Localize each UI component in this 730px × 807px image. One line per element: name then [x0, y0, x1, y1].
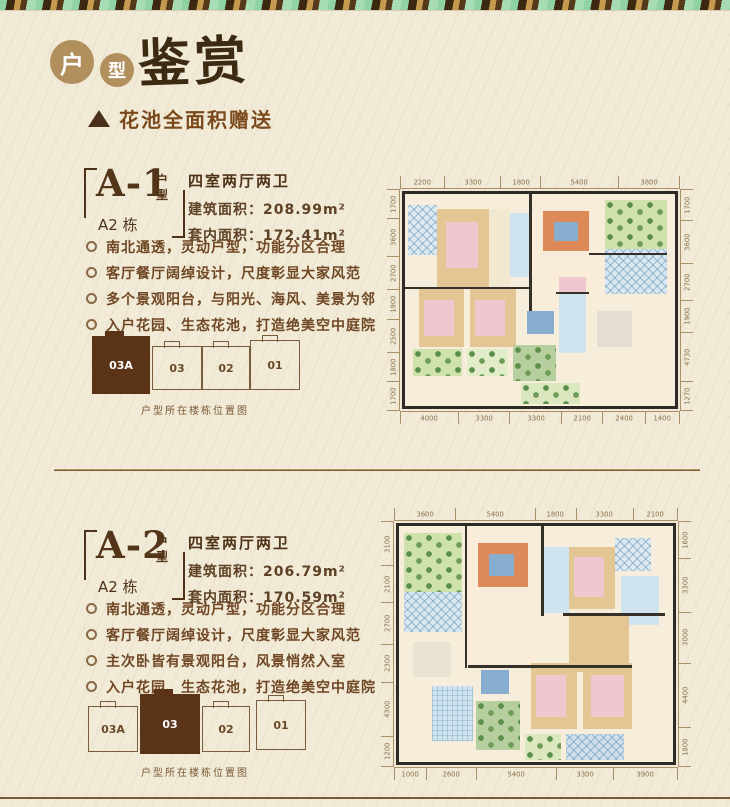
dimension-label: 3600	[683, 233, 691, 250]
dimension-label: 1700	[389, 387, 397, 404]
floorplan-room	[475, 300, 505, 336]
feature-bullet-row: 入户花园、生态花池，打造绝美空中庭院	[86, 316, 376, 333]
unit-code-header: A-2 户型 A2 栋	[84, 530, 188, 600]
dimension-segment: 2700	[681, 263, 693, 300]
dimension-label: 1900	[683, 308, 691, 325]
unit-code-header: A-1 户型 A2 栋	[84, 168, 188, 238]
dimension-label: 5400	[508, 770, 525, 778]
floorplan-room	[405, 287, 529, 289]
floorplan-room	[566, 734, 624, 760]
building-unit-03A: 03A	[88, 706, 138, 752]
dimension-label: 2300	[383, 655, 391, 672]
dimension-label: 2700	[389, 264, 397, 281]
floorplan-dims-left: 1700360027001900250018001700	[382, 189, 400, 411]
dimension-label: 1800	[547, 510, 564, 518]
floorplan-dims-bottom: 10002600540033003900	[394, 767, 678, 782]
building-unit-01: 01	[256, 700, 306, 750]
dimension-segment: 5400	[455, 508, 535, 520]
dimension-label: 1800	[681, 738, 689, 755]
floorplan-room	[481, 670, 508, 694]
floorplan-room	[541, 526, 544, 616]
page-title-calligraphy: 鉴赏	[137, 18, 252, 97]
dimension-label: 1800	[389, 358, 397, 375]
bracket-right-icon	[172, 190, 185, 238]
bullet-ring-icon	[86, 293, 97, 304]
floorplan-room	[413, 349, 462, 377]
floorplan-room	[527, 311, 554, 334]
dimension-segment: 3300	[444, 176, 500, 188]
dimension-segment: 1900	[387, 289, 399, 319]
dimension-segment: 3300	[556, 768, 613, 780]
dimension-label: 3300	[527, 414, 544, 422]
dimension-segment: 3000	[679, 612, 691, 663]
floorplan-room	[489, 209, 511, 287]
dimension-segment: 3600	[387, 218, 399, 256]
feature-bullet-row: 南北通透，灵动户型，功能分区合理	[86, 600, 376, 617]
feature-bullets: 南北通透，灵动户型，功能分区合理客厅餐厅阔绰设计，尺度彰显大家风范主次卧皆有景观…	[86, 600, 376, 704]
feature-bullet-text: 客厅餐厅阔绰设计，尺度彰显大家风范	[106, 263, 361, 283]
bullet-ring-icon	[86, 655, 97, 666]
dimension-segment: 3300	[458, 412, 510, 424]
dimension-segment: 3600	[681, 220, 693, 262]
dimension-label: 2500	[389, 327, 397, 344]
floorplan: 36005400180033002100 3100210027002300430…	[376, 506, 696, 782]
building-unit-label: 01	[273, 719, 288, 732]
dimension-label: 4300	[383, 701, 391, 718]
building-unit-label: 03A	[109, 359, 133, 372]
dimension-segment: 2300	[381, 644, 393, 682]
dimension-segment: 4300	[381, 682, 393, 735]
unit-layout-title: 四室两厅两卫	[188, 532, 346, 553]
unit-building-label: A2 栋	[98, 214, 138, 235]
dimension-segment: 4000	[400, 412, 458, 424]
building-unit-label: 03	[162, 718, 177, 731]
dimension-segment: 1270	[681, 381, 693, 411]
dimension-label: 5400	[571, 178, 588, 186]
brand-badge-circle-1: 户	[50, 40, 94, 84]
floorplan-room	[591, 675, 624, 717]
floorplan-room	[424, 300, 454, 336]
floorplan-room	[413, 642, 451, 677]
feature-bullet-row: 主次卧皆有景观阳台，风景悄然入室	[86, 652, 376, 669]
bullet-ring-icon	[86, 267, 97, 278]
floorplan-room	[536, 675, 566, 717]
feature-bullet-text: 客厅餐厅阔绰设计，尺度彰显大家风范	[106, 625, 361, 645]
floorplan-room	[605, 200, 667, 249]
dimension-segment: 2600	[426, 768, 476, 780]
dimension-label: 3100	[383, 535, 391, 552]
section-a1: A-1 户型 A2 栋 四室两厅两卫 建筑面积：208.99m² 套内面积：17…	[0, 160, 730, 482]
dimension-segment: 1200	[381, 736, 393, 767]
floorplan-room	[544, 547, 569, 613]
floorplan-room	[513, 345, 556, 381]
bullet-ring-icon	[86, 319, 97, 330]
dimension-segment: 1700	[681, 189, 693, 220]
dimension-label: 3900	[637, 770, 654, 778]
feature-bullet-text: 多个景观阳台，与阳光、海风、美景为邻	[106, 289, 376, 309]
dimension-label: 2400	[615, 414, 632, 422]
triangle-icon	[88, 110, 110, 127]
dimension-segment: 1600	[679, 521, 691, 558]
dimension-segment: 4400	[679, 663, 691, 727]
dimension-segment: 1400	[645, 412, 680, 424]
section-divider	[54, 469, 700, 471]
dimension-label: 3600	[416, 510, 433, 518]
dimension-segment: 2100	[381, 565, 393, 602]
dimension-segment: 1800	[679, 727, 691, 767]
building-unit-03: 03	[140, 694, 200, 754]
floorplan-dims-bottom: 400033003300210024001400	[400, 411, 680, 426]
dimension-segment: 1700	[387, 189, 399, 218]
section-a2: A-2 户型 A2 栋 四室两厅两卫 建筑面积：206.79m² 套内面积：17…	[0, 522, 730, 807]
brand-badge-2-text: 型	[108, 57, 126, 83]
floorplan-room	[446, 222, 478, 269]
dimension-segment: 2700	[381, 602, 393, 643]
feature-bullet-row: 多个景观阳台，与阳光、海风、美景为邻	[86, 290, 376, 307]
dimension-label: 1200	[383, 743, 391, 760]
building-position-map: 03A030201 户型所在楼栋位置图	[80, 332, 310, 416]
building-unit-01: 01	[250, 340, 300, 390]
dimension-label: 1700	[389, 195, 397, 212]
floorplan-room	[605, 249, 667, 294]
dimension-label: 3300	[576, 770, 593, 778]
floorplan-room	[408, 205, 438, 256]
dimension-segment: 1800	[387, 352, 399, 381]
dimension-segment: 3300	[576, 508, 633, 520]
dimension-label: 4730	[683, 349, 691, 366]
bullet-ring-icon	[86, 681, 97, 692]
feature-bullet-row: 南北通透，灵动户型，功能分区合理	[86, 238, 376, 255]
dimension-segment: 4730	[681, 332, 693, 381]
feature-bullet-row: 客厅餐厅阔绰设计，尺度彰显大家风范	[86, 264, 376, 281]
floorplan-dims-left: 310021002700230043001200	[376, 521, 394, 767]
dimension-label: 1270	[683, 387, 691, 404]
unit-code-suffix: 户型	[156, 173, 171, 203]
brand-badge-circle-2: 型	[100, 53, 134, 87]
bullet-ring-icon	[86, 629, 97, 640]
bullet-ring-icon	[86, 241, 97, 252]
building-unit-label: 03A	[101, 723, 125, 736]
dimension-segment: 1900	[681, 300, 693, 332]
dimension-segment: 1800	[500, 176, 540, 188]
dimension-segment: 1800	[535, 508, 576, 520]
dimension-segment: 3600	[394, 508, 455, 520]
dimension-segment: 3300	[679, 558, 691, 612]
dimension-label: 3300	[476, 414, 493, 422]
dimension-label: 2200	[414, 178, 431, 186]
floorplan-dims-right: 16003300300044001800	[678, 521, 696, 767]
floorplan-room	[467, 349, 508, 377]
feature-bullet-text: 南北通透，灵动户型，功能分区合理	[106, 237, 346, 257]
floorplan-room	[432, 686, 473, 740]
floorplan-dims-top: 22003300180054003800	[400, 174, 680, 189]
dimension-label: 3300	[596, 510, 613, 518]
floorplan-room	[574, 557, 604, 597]
dimension-label: 3600	[389, 229, 397, 246]
decorative-top-border	[0, 0, 730, 11]
building-unit-02: 02	[202, 346, 250, 390]
floorplan-room	[404, 592, 462, 632]
dimension-label: 2100	[573, 414, 590, 422]
dimension-label: 4000	[421, 414, 438, 422]
dimension-label: 1600	[681, 531, 689, 548]
dimension-segment: 2200	[400, 176, 444, 188]
building-unit-label: 01	[267, 359, 282, 372]
dimension-segment: 1700	[387, 381, 399, 411]
feature-bullet-row: 客厅餐厅阔绰设计，尺度彰显大家风范	[86, 626, 376, 643]
bottom-rule	[0, 797, 730, 799]
built-area-line: 建筑面积：208.99m²	[188, 199, 346, 219]
floorplan-room	[563, 613, 664, 615]
dimension-label: 1800	[512, 178, 529, 186]
building-unit-03: 03	[152, 346, 202, 390]
dimension-label: 3300	[464, 178, 481, 186]
building-unit-label: 02	[218, 723, 233, 736]
building-unit-label: 03	[169, 362, 184, 375]
dimension-label: 2600	[443, 770, 460, 778]
dimension-segment: 3800	[618, 176, 680, 188]
floorplan: 22003300180054003800 1700360027001900250…	[382, 174, 698, 426]
dimension-segment: 3100	[381, 521, 393, 565]
floorplan-room	[597, 311, 632, 347]
dimension-label: 3000	[681, 629, 689, 646]
floorplan-canvas	[402, 191, 678, 409]
dimension-label: 1400	[654, 414, 671, 422]
bullet-ring-icon	[86, 603, 97, 614]
brand-badge-1-text: 户	[60, 45, 84, 80]
highlight-subtitle: 花池全面积赠送	[119, 104, 273, 133]
dimension-segment: 2100	[633, 508, 678, 520]
building-unit-03A: 03A	[92, 336, 150, 394]
floorplan-room	[521, 383, 580, 404]
position-map-caption: 户型所在楼栋位置图	[80, 402, 310, 417]
dimension-segment: 2500	[387, 319, 399, 352]
floorplan-room	[465, 526, 468, 668]
dimension-label: 2100	[383, 576, 391, 593]
floorplan-room	[529, 194, 532, 311]
dimension-segment: 1000	[394, 768, 426, 780]
dimension-segment: 2400	[602, 412, 645, 424]
floorplan-room	[554, 222, 578, 241]
dimension-label: 2700	[383, 615, 391, 632]
dimension-label: 3800	[640, 178, 657, 186]
dimension-label: 2700	[683, 273, 691, 290]
floorplan-room	[559, 294, 586, 353]
dimension-segment: 5400	[540, 176, 618, 188]
floorplan-room	[489, 554, 514, 575]
dimension-segment: 3900	[613, 768, 678, 780]
unit-code-suffix: 户型	[156, 535, 171, 565]
building-position-map: 03A030201 户型所在楼栋位置图	[80, 694, 310, 778]
dimension-label: 2100	[647, 510, 664, 518]
floorplan-canvas	[396, 523, 676, 765]
feature-bullet-text: 南北通透，灵动户型，功能分区合理	[106, 599, 346, 619]
dimension-label: 3300	[681, 577, 689, 594]
floorplan-room	[589, 253, 667, 255]
dimension-label: 1000	[402, 770, 419, 778]
unit-building-label: A2 栋	[98, 576, 138, 597]
dimension-segment: 2100	[561, 412, 602, 424]
floorplan-room	[404, 533, 462, 592]
dimension-label: 4400	[681, 687, 689, 704]
position-map-caption: 户型所在楼栋位置图	[80, 764, 310, 779]
floorplan-room	[556, 292, 588, 294]
feature-bullets: 南北通透，灵动户型，功能分区合理客厅餐厅阔绰设计，尺度彰显大家风范多个景观阳台，…	[86, 238, 376, 342]
dimension-segment: 2700	[387, 256, 399, 290]
unit-layout-title: 四室两厅两卫	[188, 170, 346, 191]
highlight-subtitle-row: 花池全面积赠送	[88, 104, 273, 133]
built-area-line: 建筑面积：206.79m²	[188, 561, 346, 581]
building-unit-label: 02	[218, 362, 233, 375]
dimension-label: 1900	[389, 296, 397, 313]
bracket-right-icon	[172, 552, 185, 600]
floorplan-room	[476, 701, 520, 751]
dimension-label: 1700	[683, 196, 691, 213]
dimension-segment: 5400	[476, 768, 556, 780]
floorplan-dims-right: 170036002700190047301270	[680, 189, 698, 411]
feature-bullet-row: 入户花园、生态花池，打造绝美空中庭院	[86, 678, 376, 695]
floorplan-room	[468, 665, 632, 667]
dimension-label: 5400	[486, 510, 503, 518]
floorplan-room	[615, 538, 651, 571]
floorplan-dims-top: 36005400180033002100	[394, 506, 678, 521]
floorplan-room	[525, 734, 561, 760]
dimension-segment: 3300	[509, 412, 561, 424]
building-unit-02: 02	[202, 706, 250, 752]
feature-bullet-text: 主次卧皆有景观阳台，风景悄然入室	[106, 651, 346, 671]
